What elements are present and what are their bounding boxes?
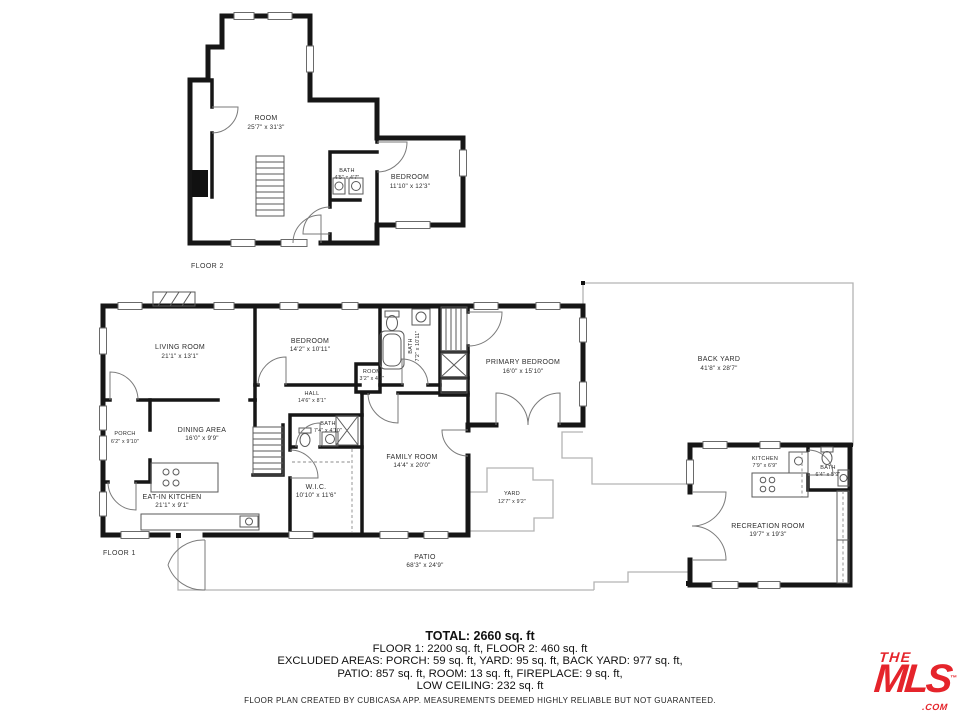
disclaimer-text: FLOOR PLAN CREATED BY CUBICASA APP. MEAS… xyxy=(0,696,960,705)
wic-dashed-lines xyxy=(292,449,352,533)
floor2-stairs xyxy=(256,156,284,216)
dining-area-dims: 16'0" x 9'9" xyxy=(185,435,218,442)
dining-area-label: DINING AREA xyxy=(178,427,226,434)
floor-areas: FLOOR 1: 2200 sq. ft, FLOOR 2: 460 sq. f… xyxy=(0,643,960,655)
porch-label: PORCH xyxy=(114,431,135,437)
floor2-bedroom-label: BEDROOM xyxy=(391,174,429,181)
floor2-plan: ROOM 25'7" x 31'3" BATH 4'5" x 4'7" BEDR… xyxy=(190,13,467,271)
living-room-label: LIVING ROOM xyxy=(155,344,205,351)
yard-label: YARD xyxy=(504,491,520,497)
small-room-label: ROOM xyxy=(363,369,381,375)
porch-dims: 6'2" x 9'10" xyxy=(111,439,139,445)
trademark-symbol: ™ xyxy=(949,675,957,682)
mls-logo-wordmark: MLS™ xyxy=(872,664,951,703)
excluded-areas-1: EXCLUDED AREAS: PORCH: 59 sq. ft, YARD: … xyxy=(0,655,960,667)
floor-plan-page: ROOM 25'7" x 31'3" BATH 4'5" x 4'7" BEDR… xyxy=(0,0,960,720)
yard-dims: 12'7" x 9'2" xyxy=(498,499,526,505)
wic-label: W.I.C. xyxy=(306,484,327,491)
summary-block: TOTAL: 2660 sq. ft FLOOR 1: 2200 sq. ft,… xyxy=(0,629,960,693)
family-room-label: FAMILY ROOM xyxy=(386,454,437,461)
recreation-room-label: RECREATION ROOM xyxy=(731,523,805,530)
floor2-room-dims: 25'7" x 31'3" xyxy=(247,124,284,131)
chimney-block xyxy=(192,170,208,197)
floor2-bedroom-dims: 11'10" x 12'3" xyxy=(390,183,430,190)
floor1-label: FLOOR 1 xyxy=(103,550,136,557)
living-room-dims: 21'1" x 13'1" xyxy=(161,353,198,360)
bedroom-label: BEDROOM xyxy=(291,338,329,345)
rec-kitchen-label: KITCHEN xyxy=(752,456,778,462)
floor1-stairs xyxy=(253,427,283,475)
rec-bath-dims: 6'4" x 5'9" xyxy=(816,472,841,478)
patio-dims: 68'3" x 24'9" xyxy=(406,562,443,569)
wic-dims: 10'10" x 11'6" xyxy=(296,492,336,499)
back-yard-label: BACK YARD xyxy=(698,356,741,363)
rec-kitchen-dims: 7'9" x 6'9" xyxy=(753,463,778,469)
primary-bedroom-label: PRIMARY BEDROOM xyxy=(486,359,560,366)
floor-plan-canvas: ROOM 25'7" x 31'3" BATH 4'5" x 4'7" BEDR… xyxy=(0,0,960,720)
floor2-room-label: ROOM xyxy=(255,115,278,122)
floor2-label: FLOOR 2 xyxy=(191,263,224,270)
back-yard-dims: 41'8" x 28'7" xyxy=(700,365,737,372)
floor2-bath-label: BATH xyxy=(339,168,354,174)
bedroom-dims: 14'2" x 10'11" xyxy=(290,346,330,353)
bath-main-fixtures xyxy=(380,309,430,369)
closet-hatch xyxy=(441,307,467,393)
mls-logo: THE MLS™ .COM xyxy=(871,651,952,712)
excluded-areas-3: LOW CEILING: 232 sq. ft xyxy=(0,680,960,692)
recreation-room-dims: 19'7" x 19'3" xyxy=(749,531,786,538)
floor2-bath-dims: 4'5" x 4'7" xyxy=(335,175,360,181)
rec-bath-label: BATH xyxy=(820,465,835,471)
bath-main-label: BATH xyxy=(408,338,414,353)
eat-in-kitchen-dims: 21'1" x 9'1" xyxy=(155,502,188,509)
hall-label: HALL xyxy=(305,391,320,397)
floor1-walls xyxy=(103,306,850,585)
mls-logo-mls: MLS xyxy=(872,657,951,701)
small-room-dims: 3'2" x 4'1" xyxy=(360,376,385,382)
mls-logo-com: .COM xyxy=(871,703,948,712)
bath-main-dims: 7'2" x 10'11" xyxy=(415,331,421,362)
family-room-dims: 14'4" x 20'0" xyxy=(393,462,430,469)
total-area: TOTAL: 2660 sq. ft xyxy=(0,629,960,643)
primary-bedroom-dims: 16'0" x 15'10" xyxy=(503,368,544,375)
floor1-plan: LIVING ROOM 21'1" x 13'1" BEDROOM 14'2" … xyxy=(100,281,854,590)
bath-main-label-group: BATH 7'2" x 10'11" xyxy=(408,331,421,362)
floor1-doors xyxy=(108,312,833,590)
hall-dims: 14'6" x 8'1" xyxy=(298,398,326,404)
patio-label: PATIO xyxy=(414,554,436,561)
bath-small-label: BATH xyxy=(320,421,335,427)
eat-in-kitchen-label: EAT-IN KITCHEN xyxy=(143,494,202,501)
bath-small-dims: 7'4" x 4'10" xyxy=(314,428,342,434)
excluded-areas-2: PATIO: 857 sq. ft, ROOM: 13 sq. ft, FIRE… xyxy=(0,668,960,680)
yard-outlines xyxy=(176,281,853,590)
floor2-walls xyxy=(190,16,463,243)
